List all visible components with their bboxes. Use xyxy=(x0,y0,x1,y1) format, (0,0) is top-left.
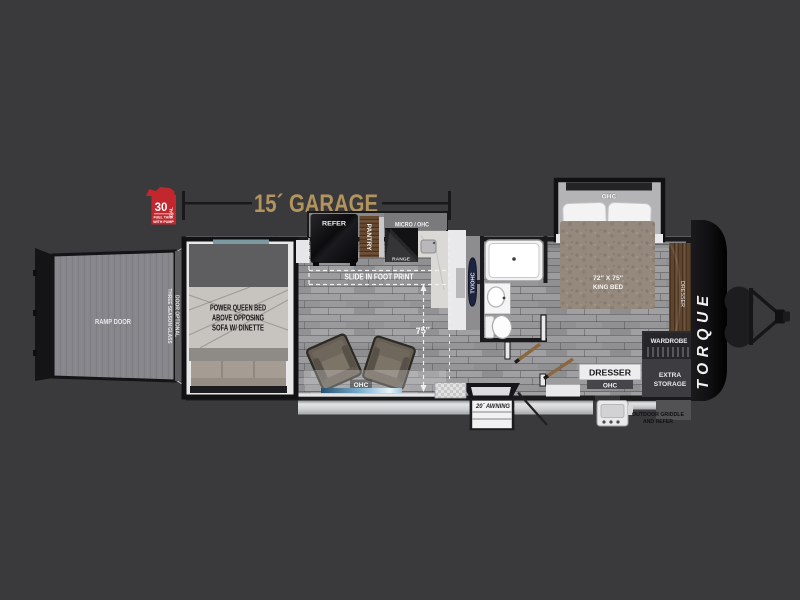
svg-text:AND REFER: AND REFER xyxy=(643,419,673,425)
svg-text:OUTDOOR GRIDDLE: OUTDOOR GRIDDLE xyxy=(632,412,685,418)
svg-text:75″: 75″ xyxy=(415,325,431,336)
svg-text:20´ AWNING: 20´ AWNING xyxy=(475,403,510,410)
svg-text:PANTRY: PANTRY xyxy=(365,224,372,252)
svg-text:STORAGE: STORAGE xyxy=(654,381,687,388)
svg-text:TV/OHC: TV/OHC xyxy=(471,272,477,293)
svg-text:REFER: REFER xyxy=(322,221,347,228)
svg-text:DRESSER: DRESSER xyxy=(589,369,631,378)
svg-text:SOFA W/ DINETTE: SOFA W/ DINETTE xyxy=(212,324,264,333)
svg-text:30: 30 xyxy=(155,202,168,214)
svg-text:TORQUE: TORQUE xyxy=(695,290,712,389)
svg-text:ABOVE OPPOSING: ABOVE OPPOSING xyxy=(212,314,264,323)
svg-text:72″ X 75″: 72″ X 75″ xyxy=(593,275,624,282)
svg-text:POWER QUEEN BED: POWER QUEEN BED xyxy=(210,304,266,313)
svg-text:MICRO / OHC: MICRO / OHC xyxy=(395,223,430,229)
svg-text:WARDROBE: WARDROBE xyxy=(651,338,688,345)
svg-text:THREE SEASON GLASS: THREE SEASON GLASS xyxy=(166,289,172,344)
svg-text:RANGE: RANGE xyxy=(392,257,410,262)
svg-text:EXTRA: EXTRA xyxy=(659,372,682,379)
svg-text:SLIDE IN FOOT PRINT: SLIDE IN FOOT PRINT xyxy=(345,273,414,282)
svg-text:OHC: OHC xyxy=(603,383,618,390)
svg-text:OHC: OHC xyxy=(602,194,617,201)
svg-text:RAMP DOOR: RAMP DOOR xyxy=(95,317,132,326)
svg-text:FUEL TANK: FUEL TANK xyxy=(153,216,173,220)
svg-text:OHC: OHC xyxy=(354,382,369,389)
svg-text:DOOR OPTIONAL: DOOR OPTIONAL xyxy=(174,295,180,337)
svg-text:WITH PUMP: WITH PUMP xyxy=(153,220,174,224)
svg-text:DRESSER: DRESSER xyxy=(679,281,685,307)
svg-text:KING BED: KING BED xyxy=(593,284,623,291)
